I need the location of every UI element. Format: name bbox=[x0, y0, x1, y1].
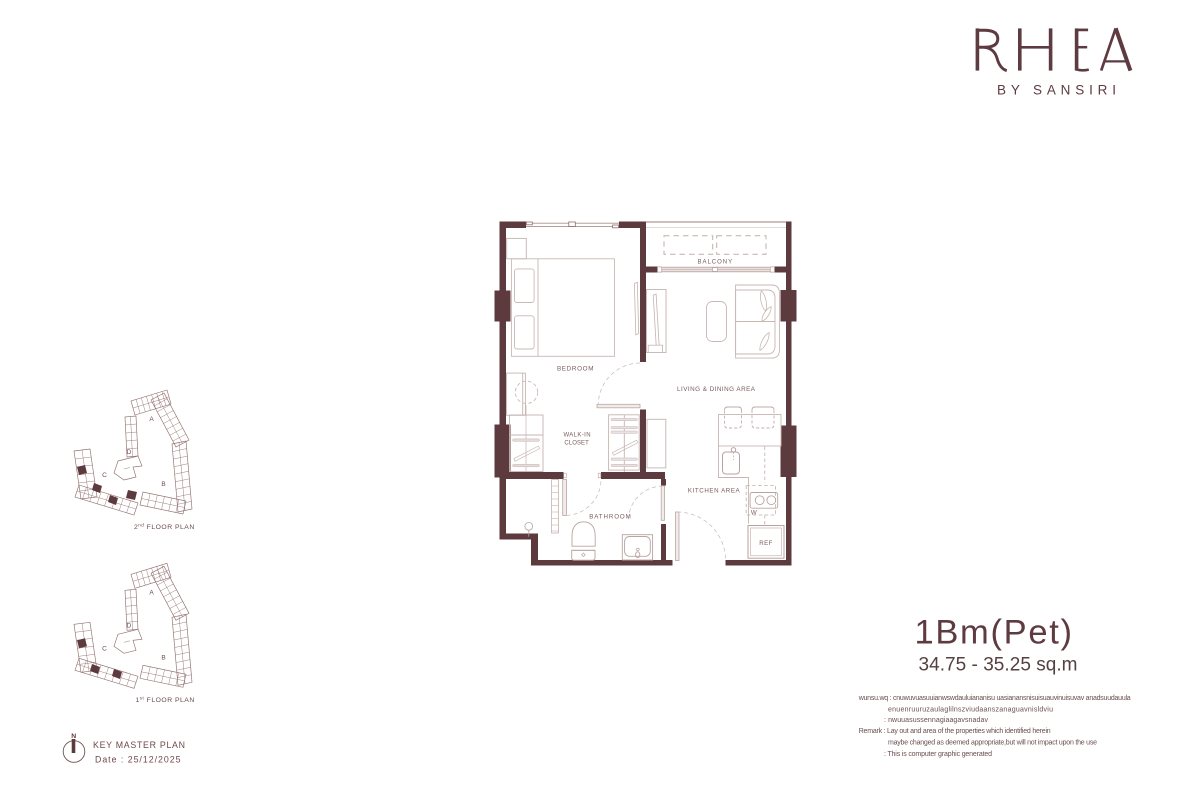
svg-text:: nwuuasussennagiaagavsnadav: : nwuuasussennagiaagavsnadav bbox=[884, 717, 989, 724]
svg-text:KITCHEN AREA: KITCHEN AREA bbox=[688, 487, 741, 494]
svg-text:C: C bbox=[102, 645, 107, 652]
svg-text:1Bm(Pet): 1Bm(Pet) bbox=[915, 614, 1073, 652]
svg-text:maybe changed as deemed approp: maybe changed as deemed appropriate,but … bbox=[888, 740, 1097, 747]
svg-text:34.75 - 35.25 sq.m: 34.75 - 35.25 sq.m bbox=[919, 655, 1078, 676]
svg-text:BEDROOM: BEDROOM bbox=[557, 365, 594, 372]
svg-text:Remark : Lay out and area of: Remark : Lay out and area of the propert… bbox=[859, 728, 1051, 735]
svg-text:BATHROOM: BATHROOM bbox=[589, 514, 631, 521]
svg-text:N: N bbox=[71, 733, 76, 740]
svg-text:B: B bbox=[161, 654, 165, 661]
svg-text:: This is computer graphic gen: : This is computer graphic generated bbox=[884, 751, 992, 758]
svg-text:enuenruuruzaulaglilnszviudaans: enuenruuruzaulaglilnszviudaanszanaguavni… bbox=[888, 706, 1053, 713]
svg-text:LIVING & DINING AREA: LIVING & DINING AREA bbox=[677, 386, 756, 393]
svg-text:KEY MASTER PLAN: KEY MASTER PLAN bbox=[93, 740, 185, 750]
svg-text:W: W bbox=[751, 509, 757, 516]
svg-text:A: A bbox=[149, 589, 154, 596]
svg-text:CLOSET: CLOSET bbox=[564, 441, 589, 447]
svg-text:REF: REF bbox=[759, 540, 773, 547]
svg-text:BALCONY: BALCONY bbox=[697, 260, 732, 266]
svg-text:2nd FLOOR PLAN: 2nd FLOOR PLAN bbox=[134, 523, 195, 532]
svg-text:Date : 25/12/2025: Date : 25/12/2025 bbox=[95, 755, 181, 765]
svg-text:D: D bbox=[127, 449, 132, 456]
svg-text:wunsu.wq : cnuwuvuasuuianwswda: wunsu.wq : cnuwuvuasuuianwswdauluiananis… bbox=[858, 695, 1131, 702]
svg-text:B: B bbox=[161, 481, 165, 488]
svg-text:D: D bbox=[127, 622, 132, 629]
svg-text:1st FLOOR PLAN: 1st FLOOR PLAN bbox=[136, 696, 195, 705]
svg-text:WALK-IN: WALK-IN bbox=[563, 433, 590, 439]
svg-text:BY SANSIRI: BY SANSIRI bbox=[997, 83, 1116, 98]
svg-text:C: C bbox=[102, 472, 107, 479]
svg-text:A: A bbox=[149, 416, 154, 423]
